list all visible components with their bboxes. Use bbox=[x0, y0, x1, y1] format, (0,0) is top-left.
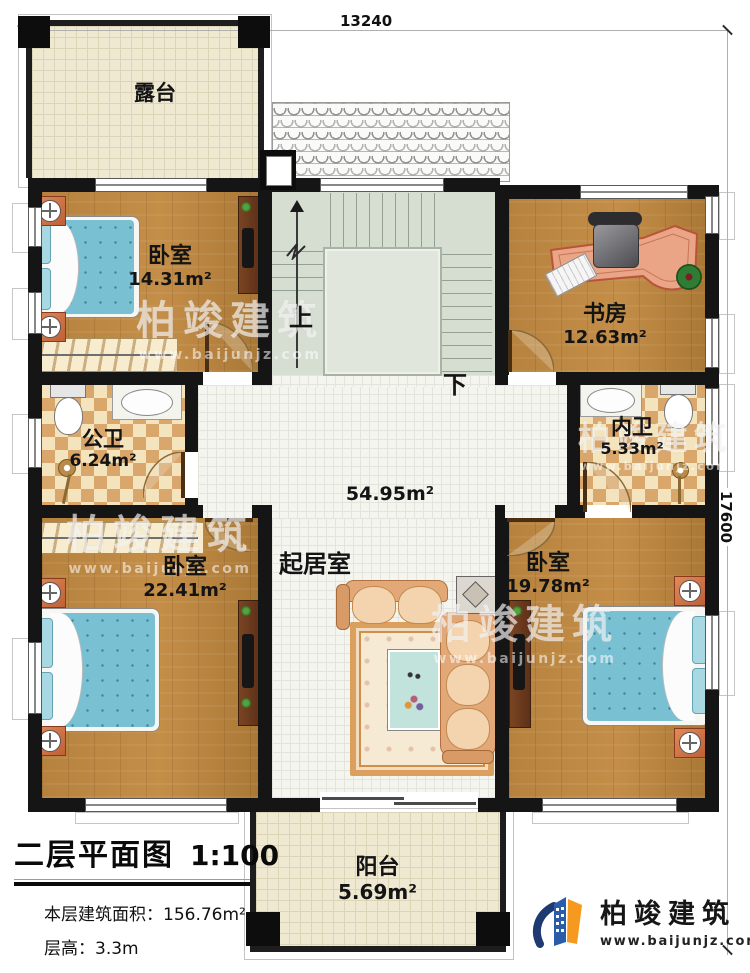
title-rule bbox=[14, 882, 250, 886]
title-rule-thin bbox=[14, 879, 250, 880]
stair-down-label: 下 bbox=[438, 372, 472, 399]
column bbox=[18, 16, 50, 48]
down-text: 下 bbox=[443, 372, 467, 399]
wardrobe-rod bbox=[42, 537, 198, 539]
wall-segment bbox=[632, 505, 719, 518]
wall-segment bbox=[495, 372, 508, 385]
room-name: 卧室 bbox=[148, 245, 192, 270]
wall-segment bbox=[555, 505, 567, 518]
window bbox=[28, 642, 42, 714]
lamp-icon bbox=[39, 730, 61, 752]
window bbox=[95, 178, 207, 192]
chimney-inner bbox=[266, 156, 292, 186]
room-name: 起居室 bbox=[279, 551, 351, 578]
bedroom-br-label: 卧室 19.78m² bbox=[478, 552, 618, 597]
wall-segment bbox=[495, 199, 509, 375]
window-sill bbox=[532, 812, 689, 824]
floor-height-label: 层高： bbox=[44, 939, 95, 959]
window bbox=[320, 178, 444, 192]
top-dimension-line bbox=[22, 30, 727, 31]
coffee-table bbox=[388, 650, 440, 730]
wall-segment bbox=[28, 178, 42, 812]
window bbox=[705, 318, 719, 368]
stair-flight-right bbox=[438, 247, 492, 372]
room-area: 19.78m² bbox=[506, 577, 590, 597]
door-arc bbox=[205, 322, 253, 372]
room-area: 12.63m² bbox=[563, 328, 647, 348]
plant-icon bbox=[241, 202, 251, 212]
wardrobe bbox=[36, 522, 204, 554]
wall-segment bbox=[705, 185, 719, 812]
up-text: 上 bbox=[289, 305, 313, 332]
window bbox=[85, 798, 227, 812]
window bbox=[705, 196, 719, 234]
sofa-cushion bbox=[352, 586, 396, 624]
window bbox=[28, 292, 42, 334]
window-sill bbox=[75, 812, 239, 824]
width-dimension: 13240 bbox=[337, 12, 395, 30]
room-area: 54.95m² bbox=[346, 484, 434, 505]
lamp-icon bbox=[679, 580, 701, 602]
floor-plan: 13240 17600 上 下 bbox=[0, 0, 750, 973]
private-bath-label: 内卫 5.33m² bbox=[582, 416, 682, 457]
company-logo: 柏竣建筑 www.baijunjz.com bbox=[532, 888, 750, 952]
wall-segment bbox=[28, 505, 203, 518]
door-arc bbox=[205, 518, 253, 552]
sliding-door-panel bbox=[394, 802, 476, 805]
roof-tiles bbox=[272, 102, 510, 182]
column bbox=[476, 912, 510, 946]
sofa-cushion bbox=[446, 664, 490, 706]
window bbox=[28, 418, 42, 468]
wall-segment bbox=[567, 372, 580, 515]
tv bbox=[513, 634, 525, 690]
room-name: 内卫 bbox=[611, 416, 653, 440]
terrace-label: 露台 bbox=[95, 82, 215, 106]
wall-segment bbox=[252, 372, 272, 385]
wall-segment bbox=[28, 372, 203, 385]
height-dimension: 17600 bbox=[717, 488, 735, 546]
bed bbox=[582, 606, 710, 726]
window bbox=[542, 798, 677, 812]
room-area: 6.24m² bbox=[69, 452, 136, 471]
column bbox=[238, 16, 270, 48]
sofa-arm bbox=[336, 584, 350, 630]
window bbox=[705, 388, 719, 466]
balcony-wall bbox=[250, 946, 506, 952]
wardrobe-rod bbox=[41, 354, 173, 356]
floor-area-value: 156.76m² bbox=[163, 905, 246, 925]
living-area-label: 54.95m² bbox=[325, 484, 455, 505]
window bbox=[705, 615, 719, 690]
toilet-tank bbox=[50, 384, 86, 398]
plan-scale: 1:100 bbox=[190, 839, 279, 872]
living-name-label: 起居室 bbox=[250, 551, 380, 578]
bedroom-bl-label: 卧室 22.41m² bbox=[115, 556, 255, 601]
stair-landing bbox=[323, 247, 442, 376]
lamp-icon bbox=[39, 582, 61, 604]
company-website: www.baijunjz.com bbox=[600, 934, 750, 949]
office-chair bbox=[593, 224, 639, 268]
stair-guide-line bbox=[296, 210, 298, 368]
wall-segment bbox=[556, 372, 719, 385]
room-name: 公卫 bbox=[82, 428, 124, 452]
sliding-door bbox=[320, 792, 478, 808]
company-name: 柏竣建筑 bbox=[600, 892, 750, 931]
nightstand bbox=[674, 576, 706, 606]
sofa-arm bbox=[442, 750, 494, 764]
room-area: 14.31m² bbox=[128, 270, 212, 290]
room-name: 卧室 bbox=[163, 556, 207, 581]
room-area: 5.69m² bbox=[338, 881, 417, 903]
floor-height-value: 3.3m bbox=[95, 939, 139, 959]
title-block: 二层平面图 1:100 本层建筑面积：156.76m² 层高：3.3m bbox=[14, 830, 279, 959]
plant-icon bbox=[512, 606, 522, 616]
lamp-icon bbox=[39, 316, 61, 338]
room-name: 书房 bbox=[583, 303, 627, 328]
sofa-cushion bbox=[446, 620, 490, 662]
tv bbox=[242, 634, 254, 688]
wardrobe bbox=[36, 338, 178, 372]
door-arc bbox=[583, 462, 631, 512]
sofa-cushion bbox=[446, 708, 490, 750]
room-area: 22.41m² bbox=[143, 581, 227, 601]
plant-icon bbox=[676, 264, 702, 290]
nightstand bbox=[674, 728, 706, 758]
wall-segment bbox=[258, 192, 272, 375]
balcony-label: 阳台 5.69m² bbox=[300, 856, 455, 903]
room-name: 露台 bbox=[134, 82, 176, 106]
sliding-door-panel bbox=[322, 797, 404, 800]
bedroom-tl-label: 卧室 14.31m² bbox=[95, 245, 245, 290]
window bbox=[28, 207, 42, 247]
sofa-cushion bbox=[398, 586, 442, 624]
lamp-icon bbox=[39, 200, 61, 222]
bed bbox=[34, 608, 160, 732]
public-bath-label: 公卫 6.24m² bbox=[48, 428, 158, 471]
plant-icon bbox=[241, 698, 251, 708]
wall-segment bbox=[252, 505, 272, 518]
stair-up-label: 上 bbox=[284, 305, 318, 332]
sink bbox=[587, 388, 635, 413]
room-name: 阳台 bbox=[355, 856, 399, 881]
stair-break-symbol bbox=[286, 242, 308, 260]
wall-segment bbox=[185, 385, 198, 452]
stair-arrow-up-icon bbox=[290, 200, 304, 212]
room-name: 卧室 bbox=[526, 552, 570, 577]
shower-stem bbox=[678, 476, 681, 504]
study-label: 书房 12.63m² bbox=[535, 303, 675, 348]
plant-icon bbox=[241, 606, 251, 616]
window bbox=[580, 185, 688, 199]
sink bbox=[121, 389, 173, 416]
floor-area-label: 本层建筑面积： bbox=[44, 905, 163, 925]
plan-title: 二层平面图 bbox=[14, 830, 174, 874]
room-area: 5.33m² bbox=[600, 440, 663, 458]
stair-flight-top bbox=[330, 193, 437, 247]
logo-icon bbox=[532, 888, 590, 952]
terrace-wall bbox=[26, 20, 264, 26]
lamp-icon bbox=[679, 732, 701, 754]
wall-segment bbox=[495, 505, 505, 518]
